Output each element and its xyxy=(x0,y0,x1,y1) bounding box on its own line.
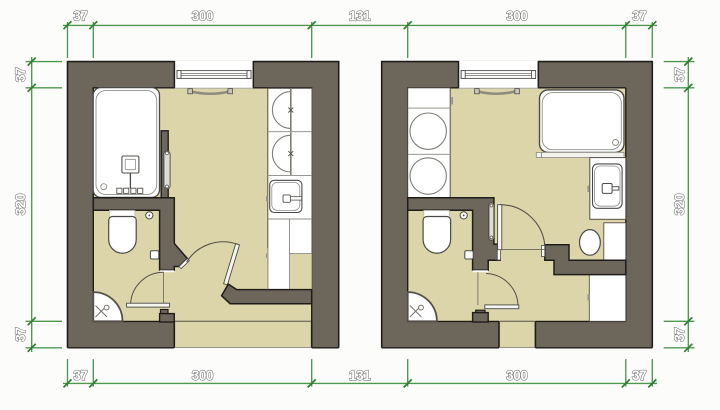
svg-text:300: 300 xyxy=(192,9,213,24)
svg-text:37: 37 xyxy=(632,9,646,24)
svg-text:37: 37 xyxy=(672,327,687,341)
svg-text:320: 320 xyxy=(672,194,687,215)
svg-text:131: 131 xyxy=(349,9,371,24)
svg-text:300: 300 xyxy=(192,368,213,383)
svg-text:37: 37 xyxy=(73,368,87,383)
svg-text:37: 37 xyxy=(13,327,28,341)
svg-text:37: 37 xyxy=(632,368,646,383)
svg-text:300: 300 xyxy=(506,9,527,24)
svg-text:300: 300 xyxy=(506,368,527,383)
svg-text:37: 37 xyxy=(73,9,87,24)
svg-text:37: 37 xyxy=(13,68,28,82)
svg-text:320: 320 xyxy=(13,194,28,215)
svg-text:37: 37 xyxy=(672,68,687,82)
svg-text:131: 131 xyxy=(349,368,371,383)
